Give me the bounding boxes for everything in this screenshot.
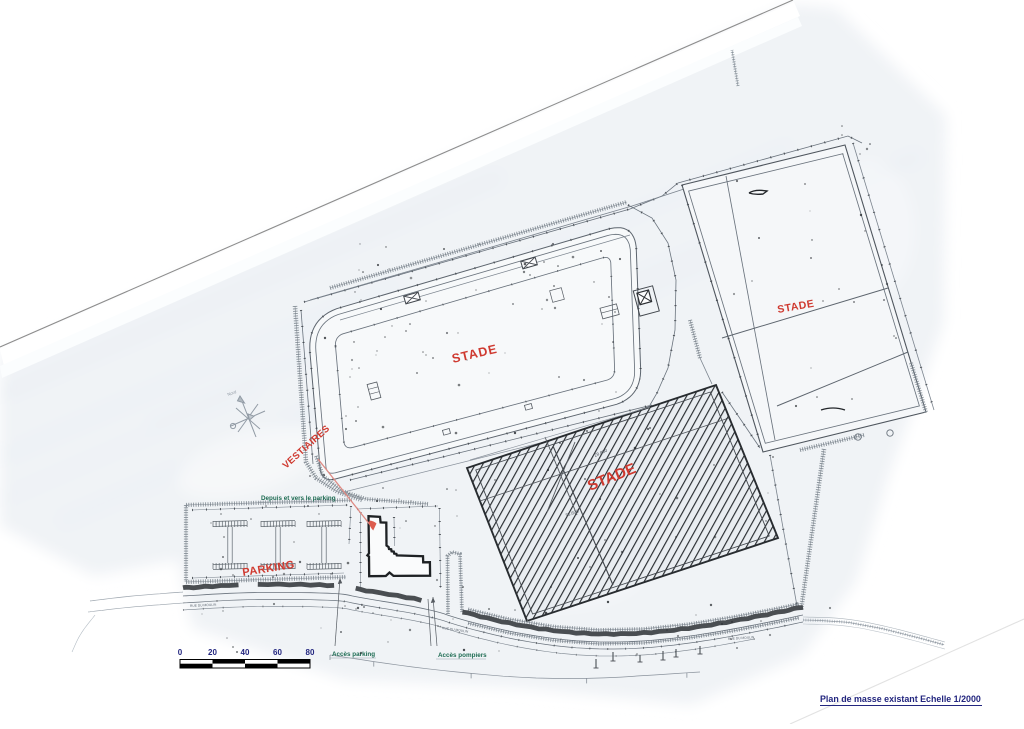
- svg-text:Depuis et vers le parking: Depuis et vers le parking: [261, 495, 336, 502]
- svg-text:60: 60: [273, 648, 282, 657]
- svg-text:20: 20: [208, 648, 217, 657]
- svg-text:Accès pompiers: Accès pompiers: [438, 652, 487, 659]
- svg-text:0: 0: [178, 648, 183, 657]
- svg-text:80: 80: [306, 648, 315, 657]
- svg-text:Accès parking: Accès parking: [332, 651, 375, 658]
- svg-text:40: 40: [241, 648, 250, 657]
- svg-text:Plan de masse existant Echell: Plan de masse existant Echelle 1/2000: [820, 694, 981, 704]
